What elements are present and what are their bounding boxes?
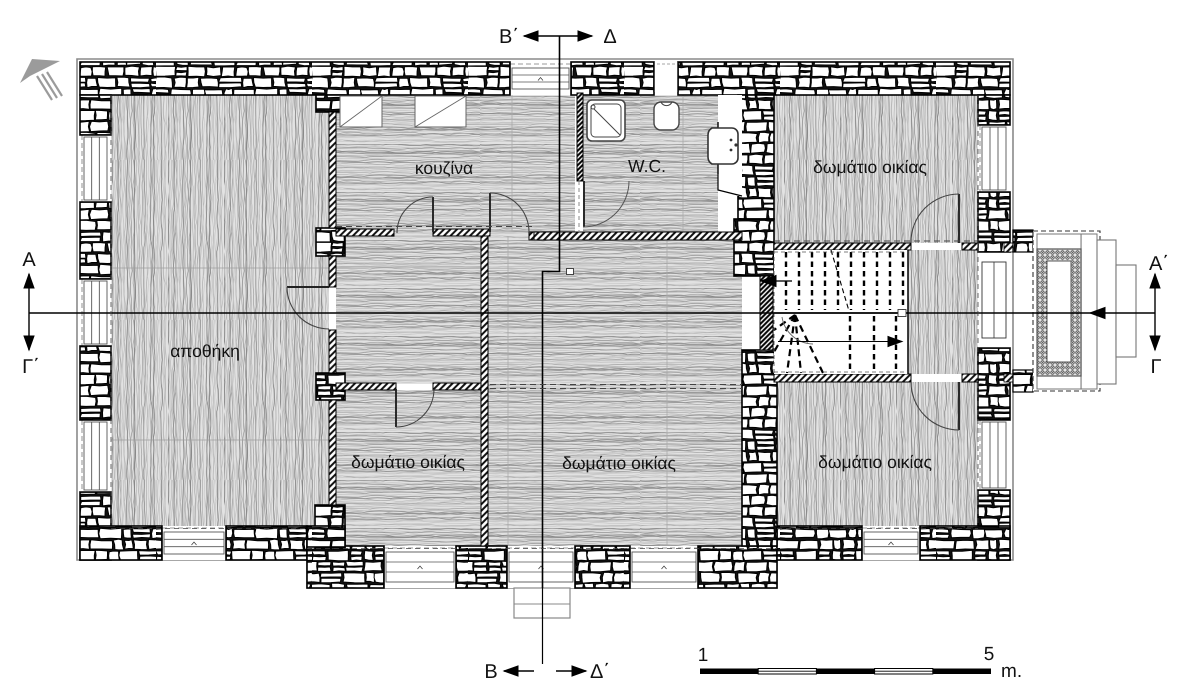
svg-text:δωμάτιο οικίας: δωμάτιο οικίας: [562, 453, 676, 473]
svg-text:Δ΄: Δ΄: [590, 661, 610, 683]
svg-text:Γ: Γ: [1150, 356, 1161, 378]
svg-text:m.: m.: [1001, 661, 1022, 682]
svg-text:δωμάτιο οικίας: δωμάτιο οικίας: [818, 452, 932, 472]
svg-text:B: B: [484, 661, 497, 683]
svg-text:Γ΄: Γ΄: [22, 356, 40, 378]
svg-text:5: 5: [984, 644, 995, 665]
svg-text:δωμάτιο οικίας: δωμάτιο οικίας: [813, 157, 927, 177]
svg-text:1: 1: [698, 645, 709, 666]
svg-text:κουζίνα: κουζίνα: [415, 158, 473, 178]
svg-text:A: A: [22, 249, 36, 271]
svg-text:Δ: Δ: [603, 26, 616, 48]
svg-text:B΄: B΄: [499, 26, 519, 48]
svg-text:αποθήκη: αποθήκη: [170, 341, 240, 361]
svg-text:δωμάτιο οικίας: δωμάτιο οικίας: [351, 452, 465, 472]
svg-text:A΄: A΄: [1149, 253, 1169, 275]
svg-text:W.C.: W.C.: [628, 156, 666, 176]
